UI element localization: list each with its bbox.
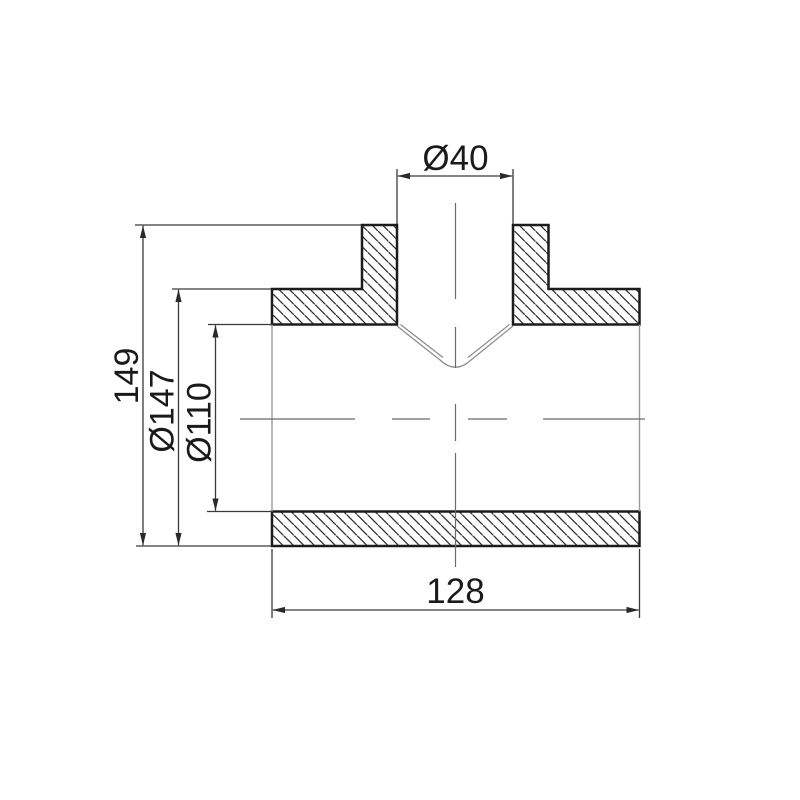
- branch-diameter-label: Ø40: [422, 139, 488, 178]
- arrowhead-right: [627, 607, 640, 613]
- left-wall-section: [272, 225, 397, 325]
- arrowhead-top: [140, 226, 146, 239]
- tee-fitting-section-drawing: Ø40 149 Ø147 Ø110 128: [0, 0, 800, 800]
- right-wall-section: [513, 225, 640, 325]
- arrowhead-left: [273, 607, 286, 613]
- dimension-bore-diameter: Ø110: [181, 325, 272, 512]
- arrowhead-bottom: [212, 499, 218, 512]
- technical-drawing-page: Ø40 149 Ø147 Ø110 128: [0, 0, 800, 800]
- arrowhead-top: [212, 325, 218, 338]
- arrowhead-top: [175, 290, 181, 303]
- arrowhead-bottom: [175, 533, 181, 546]
- arrowhead-bottom: [140, 533, 146, 546]
- outer-diameter-label: Ø147: [144, 369, 182, 452]
- height-label: 149: [108, 348, 146, 405]
- bore-diameter-label: Ø110: [181, 382, 219, 463]
- length-label: 128: [426, 572, 484, 611]
- arrowhead-left: [398, 173, 411, 179]
- arrowhead-right: [500, 173, 513, 179]
